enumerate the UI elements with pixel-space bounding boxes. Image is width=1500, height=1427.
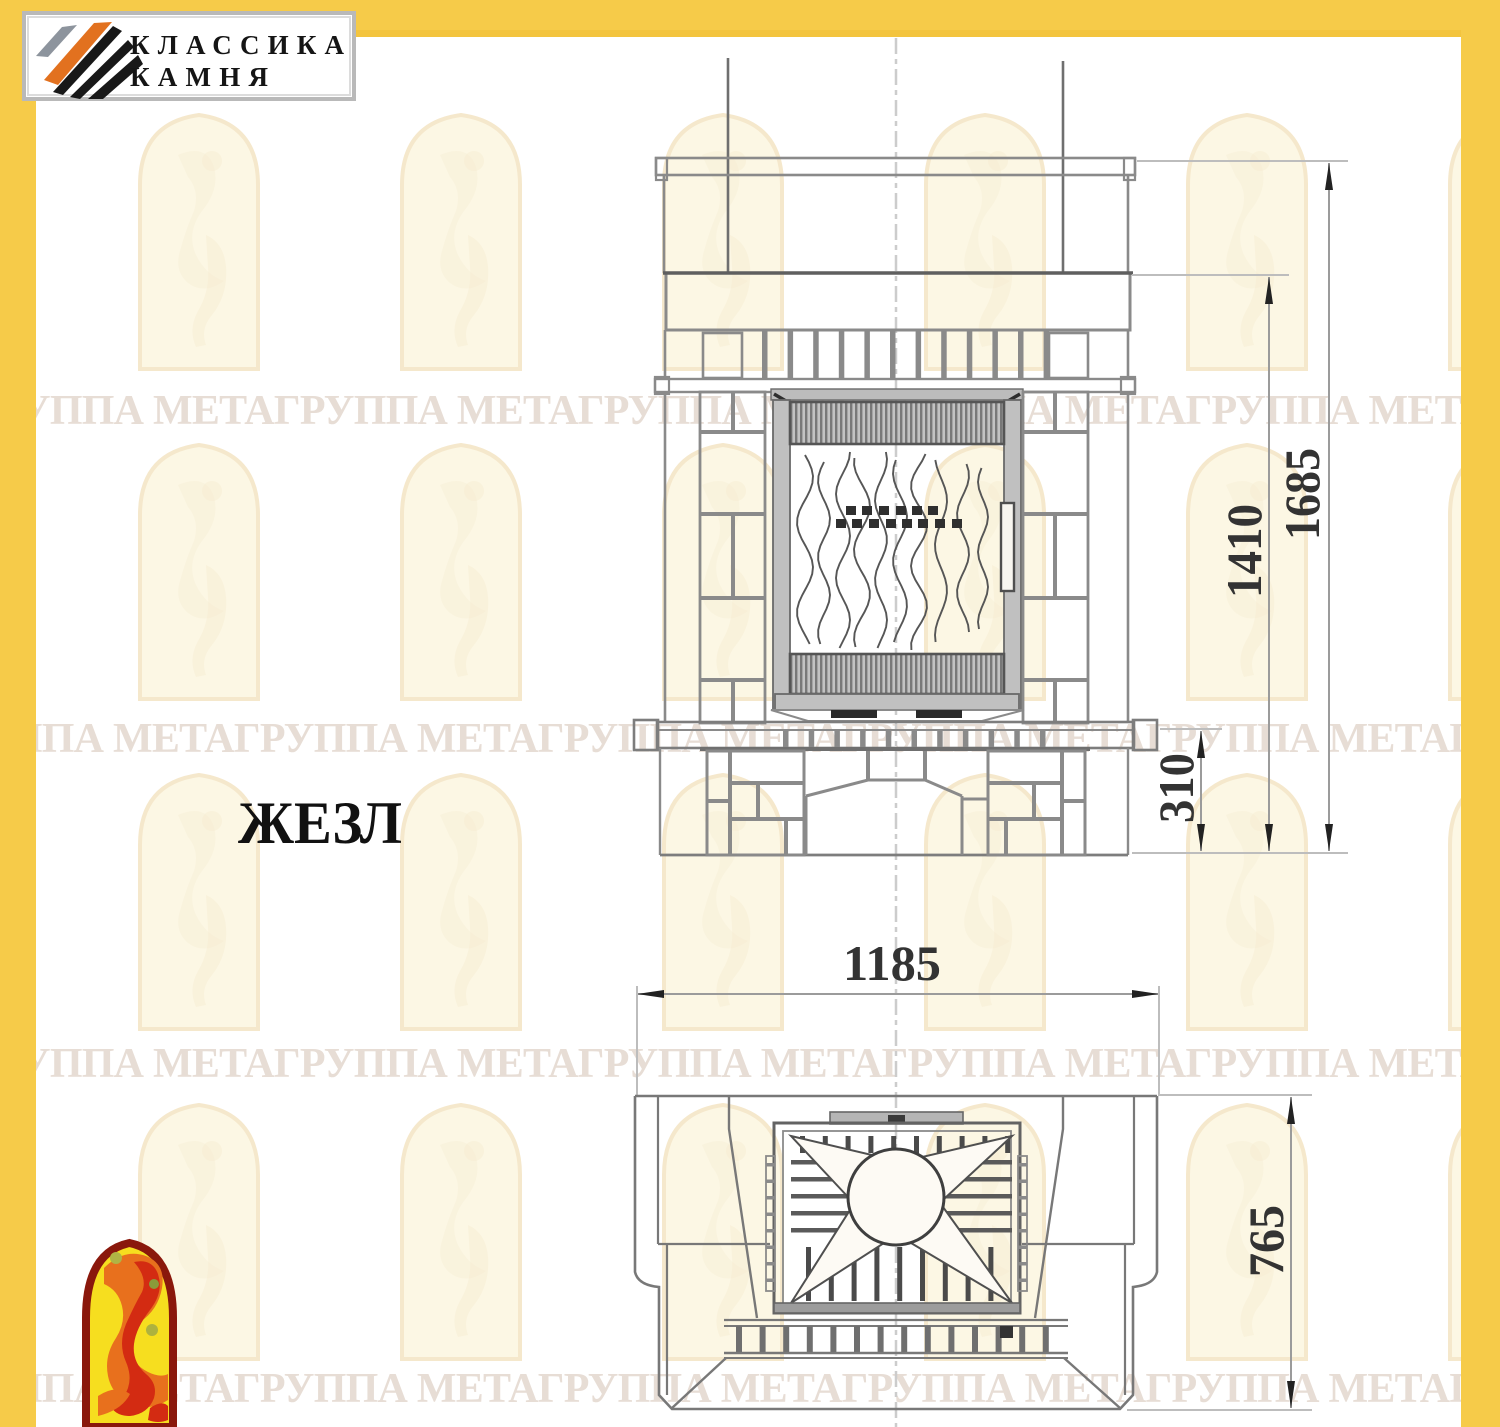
svg-text:310: 310 xyxy=(1148,753,1204,823)
svg-text:765: 765 xyxy=(1238,1205,1294,1277)
svg-text:ЖЕЗЛ: ЖЕЗЛ xyxy=(238,790,402,856)
svg-text:ГРУППА МЕТАГРУППА МЕТАГРУППА М: ГРУППА МЕТАГРУППА МЕТАГРУППА МЕТАГРУППА … xyxy=(0,388,1500,434)
svg-text:ГРУППА МЕТАГРУППА МЕТАГРУППА М: ГРУППА МЕТАГРУППА МЕТАГРУППА МЕТАГРУППА … xyxy=(0,1041,1500,1087)
svg-text:ГРУППА МЕТАГРУППА МЕТАГРУППА М: ГРУППА МЕТАГРУППА МЕТАГРУППА МЕТАГРУППА … xyxy=(0,1366,1500,1412)
svg-text:1185: 1185 xyxy=(843,935,941,991)
svg-text:1410: 1410 xyxy=(1216,504,1272,598)
svg-text:1685: 1685 xyxy=(1274,448,1330,540)
